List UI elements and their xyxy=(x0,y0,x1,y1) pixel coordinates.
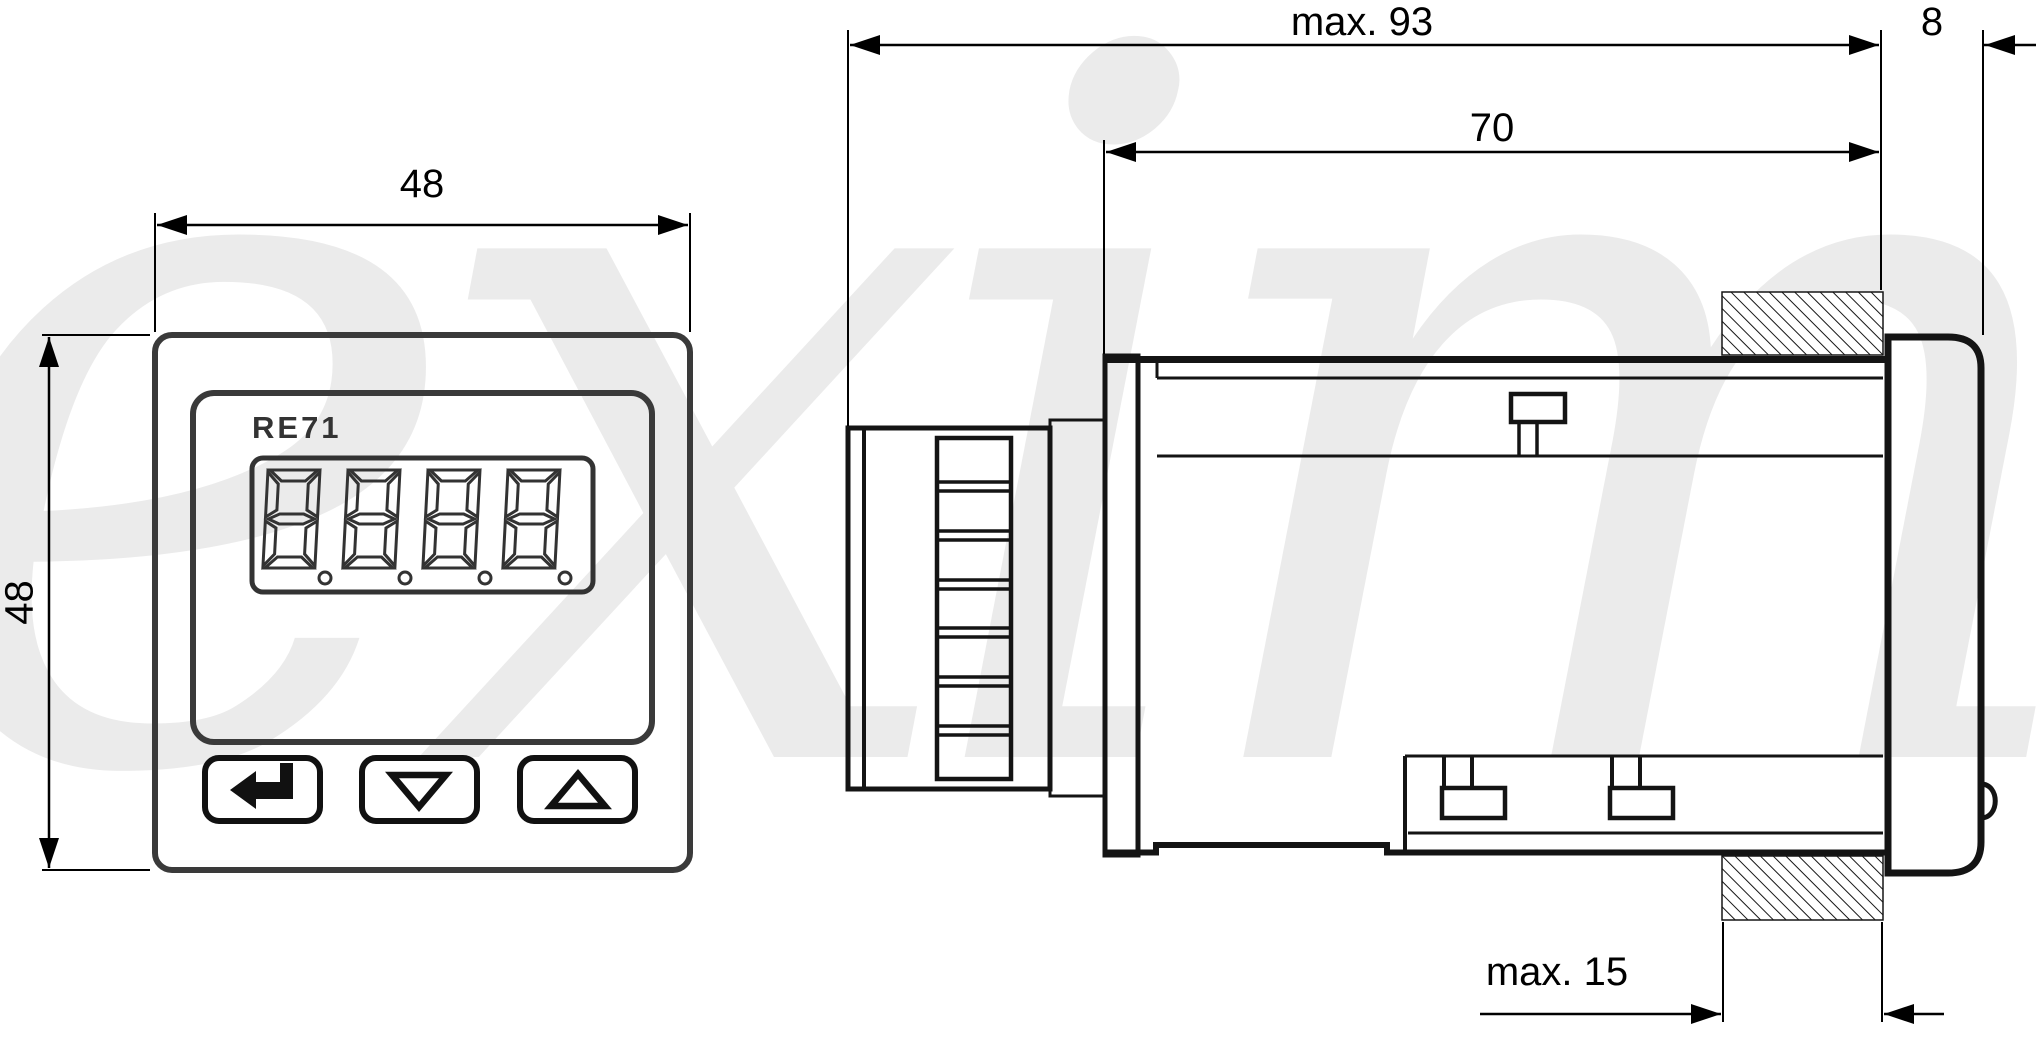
case-body xyxy=(1105,356,1886,855)
connector-ribbed-block xyxy=(937,438,1011,779)
dim-label-bezel-depth: 8 xyxy=(1892,0,1972,45)
dim-label-overall-depth: max. 93 xyxy=(1242,0,1482,45)
dim-label-behind-panel-depth: 70 xyxy=(1442,106,1542,151)
dim-label-panel-thickness: max. 15 xyxy=(1437,950,1677,995)
decimal-point-dot xyxy=(319,572,331,584)
enter-arrow-icon xyxy=(230,763,293,809)
panel-wall-hatch-bottom xyxy=(1722,856,1883,920)
up-button xyxy=(520,758,635,821)
side-view-drawing xyxy=(848,292,1995,920)
model-label: RE71 xyxy=(252,410,342,446)
rear-connector xyxy=(848,420,1106,796)
case-rear-wall xyxy=(1105,356,1138,855)
technical-drawing-canvas xyxy=(0,0,2039,1041)
down-triangle-icon xyxy=(392,775,446,807)
seven-segment-digit xyxy=(263,470,320,568)
case-bottom-wall xyxy=(1105,845,1886,853)
seven-segment-digit xyxy=(423,470,480,568)
decimal-point-dot xyxy=(399,572,411,584)
seven-segment-digits xyxy=(263,470,571,584)
front-view-drawing xyxy=(155,335,690,870)
dimension-drawing-page: eximus xyxy=(0,0,2039,1041)
dim-label-front-height: 48 xyxy=(0,543,43,663)
down-button xyxy=(362,758,477,821)
decimal-point-dot xyxy=(559,572,571,584)
dim-label-front-width: 48 xyxy=(372,162,472,207)
front-bezel-side xyxy=(1888,337,1995,873)
bottom-mounting-clamp-2 xyxy=(1610,756,1673,818)
seven-segment-digit xyxy=(343,470,400,568)
panel-wall-hatch-top xyxy=(1722,292,1883,355)
bottom-mounting-clamp-1 xyxy=(1442,756,1505,818)
up-triangle-icon xyxy=(551,774,605,806)
top-mounting-clamp xyxy=(1511,394,1565,456)
seven-segment-digit xyxy=(503,470,560,568)
decimal-point-dot xyxy=(479,572,491,584)
enter-button xyxy=(205,758,320,821)
